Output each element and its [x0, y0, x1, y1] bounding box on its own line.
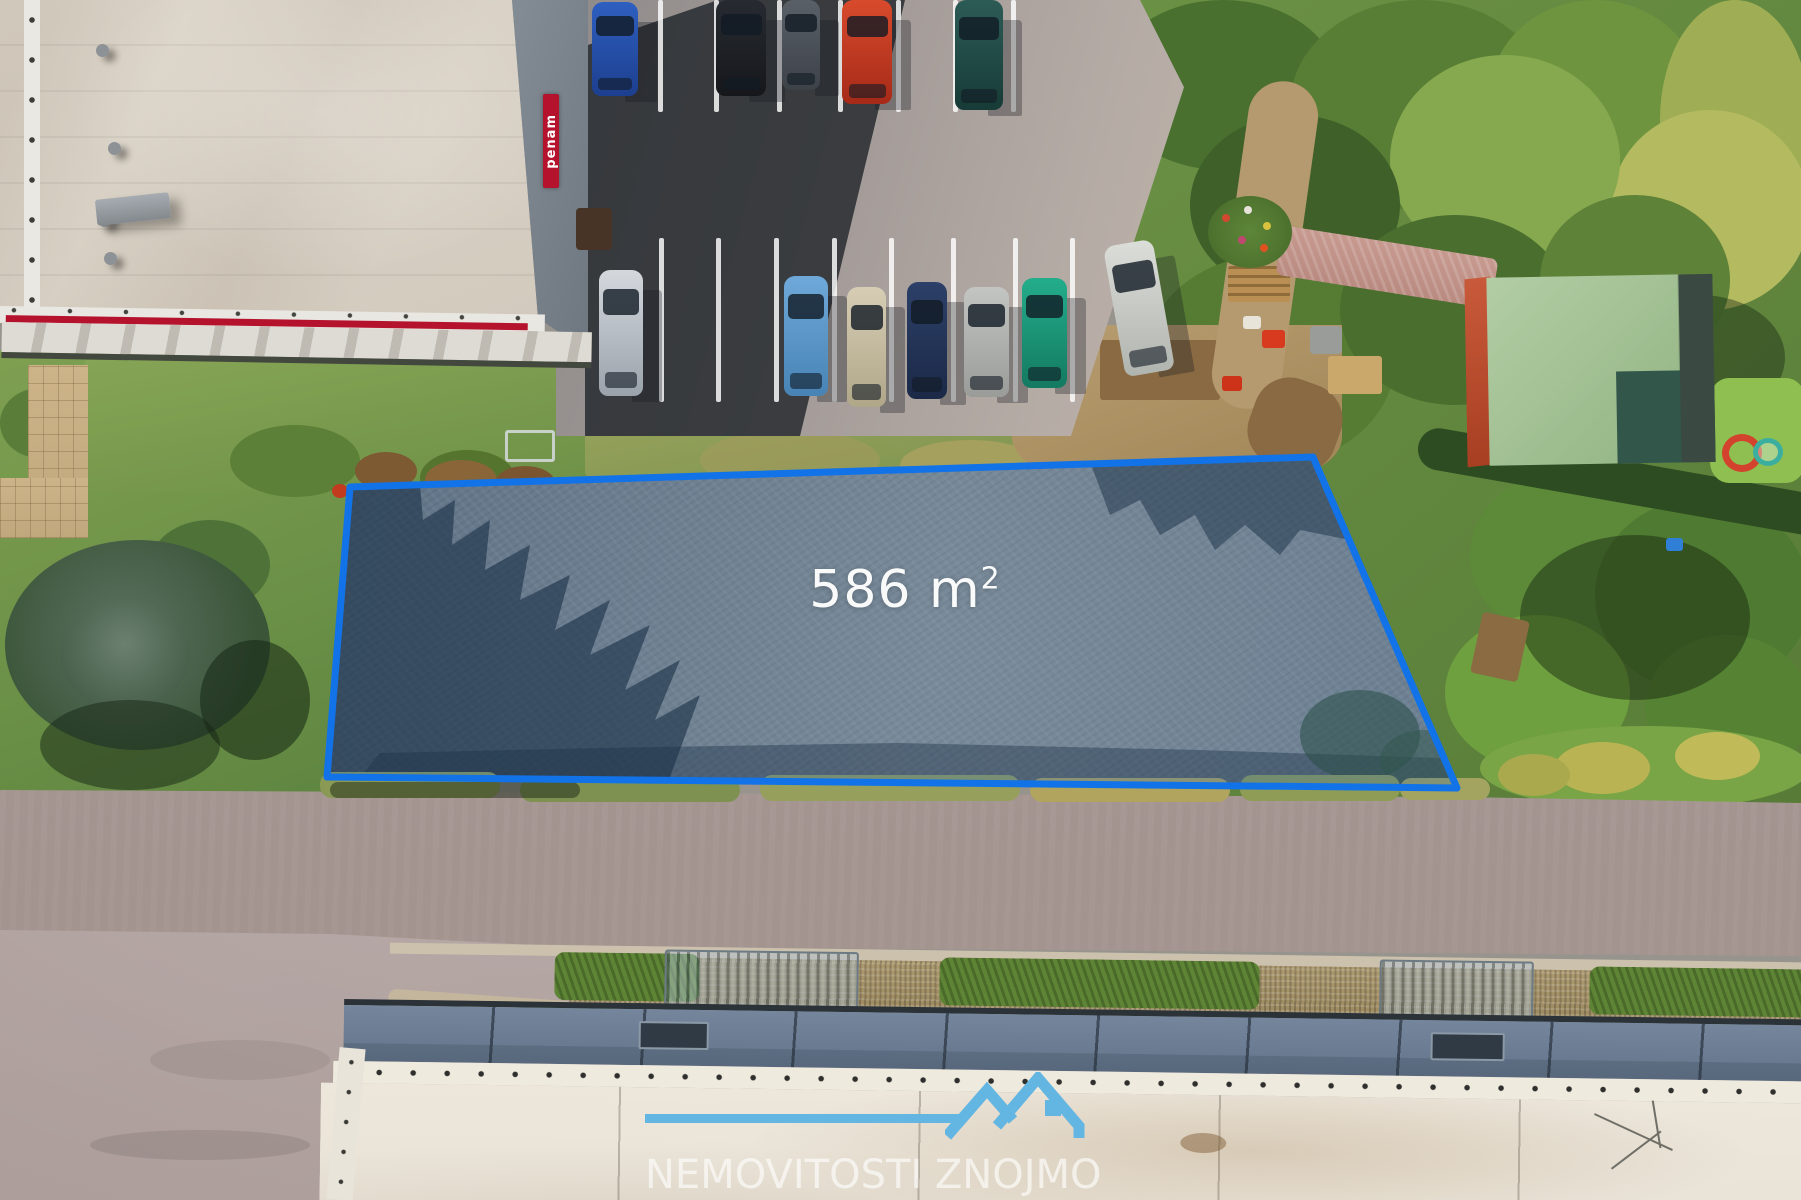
glass-fence: [1379, 959, 1534, 1021]
b: [330, 782, 580, 798]
skylight: [1430, 1032, 1504, 1061]
b: [1400, 778, 1490, 800]
skylight: [639, 1021, 709, 1050]
b: [90, 1130, 310, 1160]
area-value: 586 m: [809, 560, 980, 620]
watermark: NEMOVITOSTI ZNOJMO MIKLÍK & PARTNEŘI: [645, 1072, 1085, 1200]
area-exponent: 2: [981, 562, 1001, 597]
watermark-title: NEMOVITOSTI ZNOJMO: [645, 1152, 1085, 1198]
hedge: [939, 957, 1260, 1009]
antenna: [1611, 1131, 1662, 1170]
b: [1240, 775, 1400, 801]
watermark-header: [645, 1072, 1085, 1152]
area-label: 586 m2: [780, 560, 1030, 620]
b: [1030, 778, 1230, 802]
roof-stain: [1180, 1133, 1226, 1154]
b: [150, 1040, 330, 1080]
glass-fence: [664, 949, 859, 1012]
b: [760, 775, 1020, 801]
house-roof-icon: [945, 1072, 1085, 1152]
watermark-bar: [645, 1114, 965, 1123]
aerial-photo: penam: [0, 0, 1801, 1200]
hedge: [1589, 966, 1801, 1017]
